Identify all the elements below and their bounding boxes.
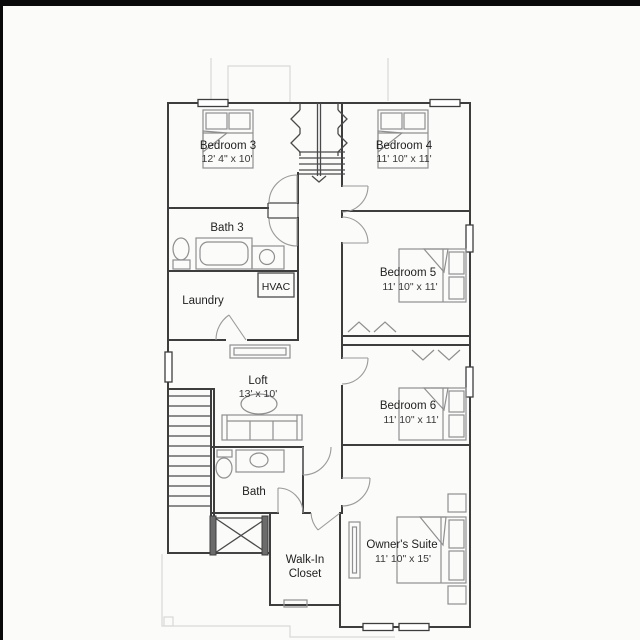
faint-roof-outline bbox=[211, 58, 388, 103]
label-bedroom5: Bedroom 5 bbox=[380, 267, 436, 279]
label-walkin-line1: Walk-In bbox=[286, 554, 325, 566]
bath2-fixtures bbox=[216, 450, 284, 478]
label-loft: Loft bbox=[248, 375, 268, 387]
floor-plan-page: { "plan": { "type": "second-floor-plan",… bbox=[0, 0, 640, 640]
nightstand-icon bbox=[448, 586, 466, 604]
stairwell-open-below bbox=[291, 103, 347, 182]
label-walkin-line2: Closet bbox=[289, 568, 322, 580]
label-bedroom6: Bedroom 6 bbox=[380, 400, 436, 412]
label-bath3: Bath 3 bbox=[210, 222, 243, 234]
nightstand-icon bbox=[448, 494, 466, 512]
label-owners-suite: Owner's Suite bbox=[366, 539, 437, 551]
label-hvac: HVAC bbox=[262, 281, 291, 293]
storage-x-box bbox=[210, 516, 268, 555]
dims-bedroom4: 11' 10" x 11' bbox=[376, 153, 431, 165]
toilet-icon bbox=[216, 458, 232, 478]
dims-bedroom5: 11' 10" x 11' bbox=[382, 281, 437, 293]
toilet-icon bbox=[173, 238, 189, 260]
sofa-icon bbox=[222, 415, 302, 440]
label-laundry: Laundry bbox=[182, 295, 224, 307]
mirror-icon bbox=[349, 522, 360, 578]
dims-owners-suite: 11' 10" x 15' bbox=[375, 553, 431, 565]
dims-loft: 13' x 10' bbox=[239, 388, 277, 400]
bath3-fixtures bbox=[173, 238, 284, 269]
label-bedroom3: Bedroom 3 bbox=[200, 140, 256, 152]
closet-chevrons bbox=[348, 322, 460, 360]
console-table-icon bbox=[230, 345, 290, 358]
floor-plan-svg: Bedroom 3 12' 4" x 10' Bedroom 4 11' 10"… bbox=[0, 0, 640, 640]
dims-bedroom6: 11' 10" x 11' bbox=[383, 414, 438, 426]
staircase-icon bbox=[169, 396, 210, 506]
label-bath2: Bath bbox=[242, 486, 266, 498]
label-bedroom4: Bedroom 4 bbox=[376, 140, 433, 152]
dims-bedroom3: 12' 4" x 10' bbox=[202, 153, 253, 165]
